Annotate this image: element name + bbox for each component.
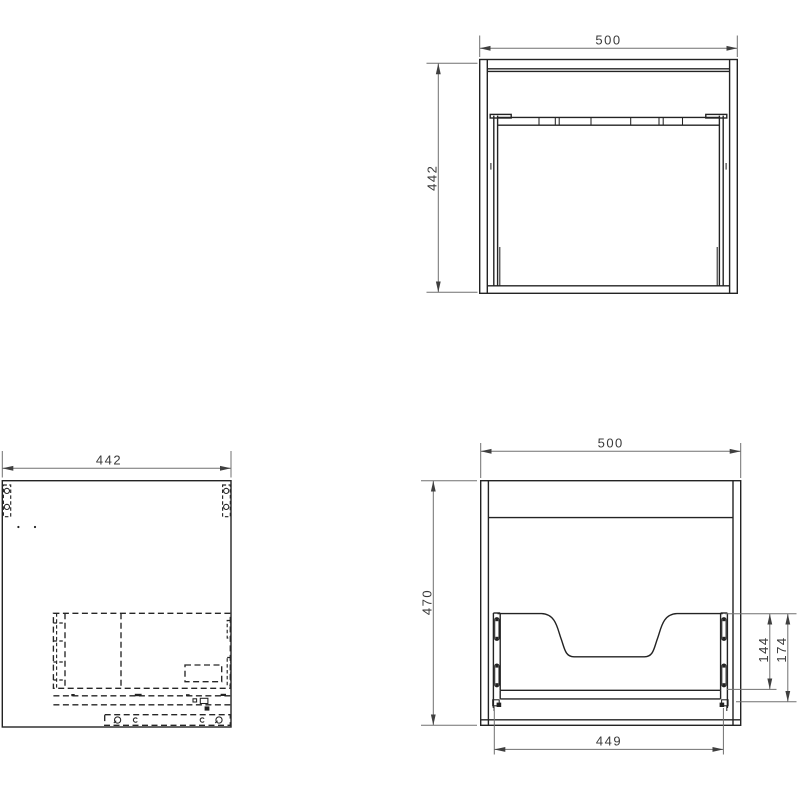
drawing-sheet: 500 442 bbox=[0, 0, 800, 800]
plan-rail-ticks bbox=[539, 117, 683, 125]
side-panel-view: 442 bbox=[2, 451, 231, 727]
dowel-hole bbox=[34, 526, 36, 528]
plan-width-label: 500 bbox=[595, 33, 621, 48]
hinge-plate-top-right bbox=[223, 485, 231, 517]
plan-depth-label: 442 bbox=[425, 165, 440, 191]
rear-dimension-height: 470 bbox=[420, 481, 477, 726]
plan-cabinet-outline bbox=[480, 60, 738, 294]
dim-174-label: 174 bbox=[774, 636, 789, 662]
dim-144-label: 144 bbox=[756, 636, 771, 662]
rear-width-label: 500 bbox=[598, 436, 624, 451]
hidden-slide-rail bbox=[53, 694, 230, 711]
plan-view: 500 442 bbox=[425, 33, 738, 294]
rear-dimension-width: 500 bbox=[481, 436, 741, 478]
drawer-back-panel bbox=[498, 614, 723, 657]
side-depth-label: 442 bbox=[96, 452, 122, 467]
plan-dimension-width: 500 bbox=[480, 33, 738, 57]
side-panel-outline bbox=[2, 481, 231, 727]
hidden-lock-fitting bbox=[185, 665, 222, 682]
hidden-bottom-strip bbox=[105, 715, 231, 726]
slide-span-label: 449 bbox=[596, 734, 622, 749]
hidden-drawer-box bbox=[53, 613, 230, 688]
side-dimension-depth: 442 bbox=[2, 451, 231, 478]
technical-drawing-canvas: 500 442 bbox=[0, 0, 800, 800]
plan-inner-frame bbox=[490, 114, 727, 285]
plan-dimension-depth: 442 bbox=[425, 63, 478, 292]
hinge-plate-top-left bbox=[3, 485, 10, 517]
rear-bottom-rail bbox=[500, 690, 720, 699]
dowel-hole bbox=[17, 526, 19, 528]
rear-view: 500 470 144 174 449 bbox=[420, 436, 797, 755]
rear-dimension-slide-span: 449 bbox=[494, 706, 723, 755]
rear-height-label: 470 bbox=[420, 589, 435, 615]
